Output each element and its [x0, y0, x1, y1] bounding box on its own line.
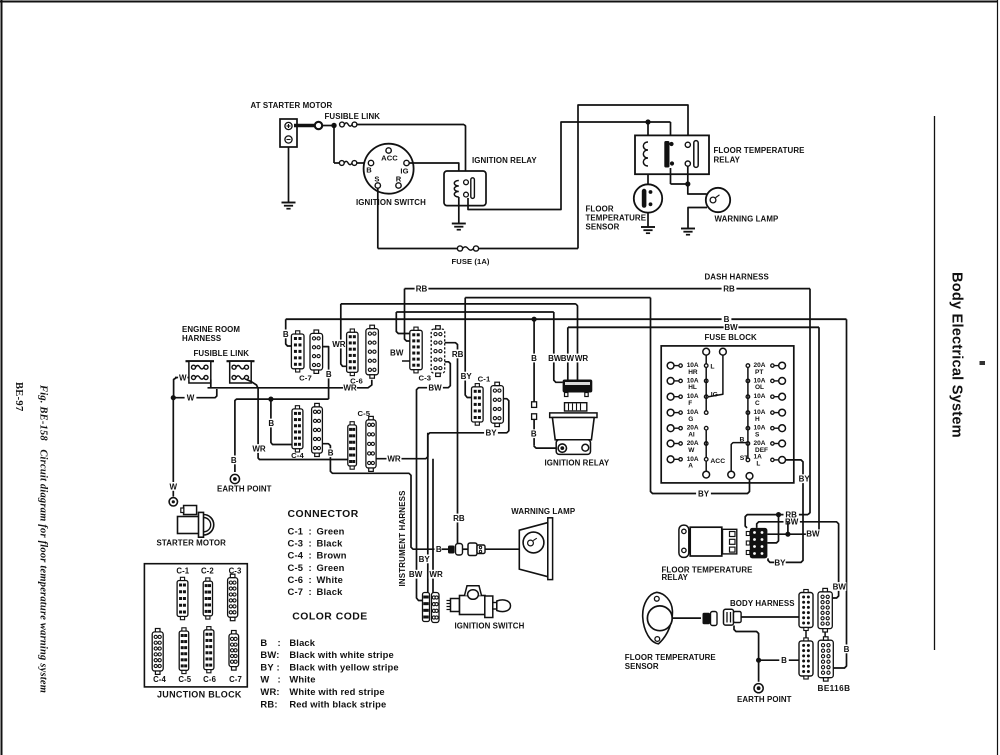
svg-text::: :: [309, 525, 312, 536]
svg-text:CONNECTOR: CONNECTOR: [288, 509, 359, 520]
svg-text:BY: BY: [461, 372, 473, 381]
svg-text:C-1: C-1: [288, 525, 304, 536]
svg-text:W: W: [260, 674, 269, 685]
svg-text:C-5: C-5: [357, 409, 370, 418]
svg-text:FLOOR TEMPERATURE: FLOOR TEMPERATURE: [625, 653, 716, 662]
svg-text:Black: Black: [317, 537, 344, 548]
svg-text:PT: PT: [755, 369, 763, 376]
svg-text:C-7: C-7: [299, 374, 312, 383]
svg-text:SENSOR: SENSOR: [586, 223, 620, 232]
svg-text:BW: BW: [409, 570, 423, 579]
svg-text:C-4: C-4: [288, 550, 304, 561]
svg-text:WR: WR: [332, 340, 346, 349]
svg-text:B: B: [781, 656, 787, 665]
svg-text:Fig. BE-158 Circuit diagram: Fig. BE-158 Circuit diagram for floor te…: [38, 384, 49, 693]
svg-text:HR: HR: [688, 369, 698, 376]
svg-text:C-7: C-7: [229, 675, 242, 684]
svg-text:WR: WR: [252, 444, 266, 453]
svg-text:BW: BW: [833, 582, 847, 591]
svg-text:DASH HARNESS: DASH HARNESS: [705, 273, 769, 282]
svg-text:S: S: [374, 175, 379, 184]
svg-text:Green: Green: [317, 562, 345, 573]
svg-text:RB: RB: [452, 350, 464, 359]
svg-text:White: White: [289, 674, 315, 685]
svg-text:Brown: Brown: [317, 550, 347, 561]
svg-text:BW: BW: [390, 349, 404, 358]
svg-text:Body Electrical System: Body Electrical System: [949, 272, 965, 438]
svg-text:AT STARTER MOTOR: AT STARTER MOTOR: [251, 101, 333, 110]
svg-text:L: L: [756, 461, 760, 468]
svg-text:Black: Black: [289, 637, 315, 648]
svg-text:L: L: [710, 364, 714, 371]
svg-text:Red with black stripe: Red with black stripe: [289, 698, 386, 709]
svg-text:WR: WR: [387, 455, 401, 464]
svg-text:BE-97: BE-97: [13, 382, 24, 412]
svg-text:FLOOR TEMPERATURE: FLOOR TEMPERATURE: [714, 146, 805, 155]
svg-text:IGNITION SWITCH: IGNITION SWITCH: [356, 198, 426, 207]
svg-text:C-6: C-6: [350, 377, 363, 386]
svg-text:A: A: [688, 463, 693, 470]
svg-text:W: W: [179, 373, 187, 382]
svg-text:ACC: ACC: [710, 458, 725, 465]
svg-text:HARNESS: HARNESS: [182, 334, 221, 343]
svg-text:G: G: [688, 416, 693, 423]
svg-text:BY: BY: [774, 558, 786, 567]
svg-text:FUSE BLOCK: FUSE BLOCK: [705, 333, 757, 342]
svg-text:RELAY: RELAY: [662, 573, 689, 582]
svg-text::: :: [278, 674, 281, 685]
svg-text:B: B: [531, 354, 537, 363]
svg-text::: :: [278, 637, 281, 648]
svg-text:EARTH POINT: EARTH POINT: [217, 485, 272, 494]
svg-text:BY: BY: [485, 429, 497, 438]
svg-text:Black: Black: [317, 586, 344, 597]
svg-text:HL: HL: [688, 384, 697, 391]
svg-text:BW: BW: [428, 384, 442, 393]
svg-text:IGNITION SWITCH: IGNITION SWITCH: [455, 622, 525, 631]
svg-text:C-4: C-4: [291, 451, 304, 460]
svg-text:White: White: [317, 574, 344, 585]
svg-text:FUSE (1A): FUSE (1A): [452, 257, 490, 266]
svg-text:RELAY: RELAY: [714, 156, 741, 165]
svg-text:B: B: [740, 437, 745, 444]
svg-text:FUSIBLE LINK: FUSIBLE LINK: [325, 112, 381, 121]
svg-text:B: B: [260, 637, 267, 648]
svg-text:BY: BY: [799, 475, 811, 484]
svg-text:C-7: C-7: [288, 586, 304, 597]
svg-text:BY: BY: [419, 555, 431, 564]
svg-text:IG: IG: [711, 391, 718, 398]
svg-text:R: R: [396, 175, 402, 184]
svg-text:ACC: ACC: [381, 154, 398, 163]
svg-text:WR: WR: [575, 354, 589, 363]
svg-text:RB: RB: [416, 284, 428, 293]
svg-text:WR: WR: [429, 570, 443, 579]
svg-text::: :: [309, 574, 312, 585]
svg-text:JUNCTION BLOCK: JUNCTION BLOCK: [157, 690, 242, 700]
svg-text:SENSOR: SENSOR: [625, 662, 659, 671]
svg-text:B: B: [328, 449, 334, 458]
svg-text:WR:: WR:: [260, 686, 279, 697]
svg-text:B: B: [268, 419, 274, 428]
svg-text:B: B: [436, 545, 442, 554]
svg-text:C-5: C-5: [178, 675, 191, 684]
svg-text:TEMPERATURE: TEMPERATURE: [586, 214, 647, 223]
svg-text:C-5: C-5: [288, 562, 304, 573]
svg-text::: :: [309, 550, 312, 561]
svg-text:C-4: C-4: [153, 675, 166, 684]
svg-text:WARNING LAMP: WARNING LAMP: [511, 507, 575, 516]
svg-text:Black with white stripe: Black with white stripe: [289, 649, 394, 660]
svg-text:1A: 1A: [754, 453, 763, 460]
svg-text:ENGINE ROOM: ENGINE ROOM: [182, 325, 240, 334]
svg-text:AI: AI: [688, 432, 695, 439]
svg-text:B: B: [366, 166, 372, 175]
svg-text:W: W: [688, 447, 695, 454]
svg-text:COLOR CODE: COLOR CODE: [292, 612, 367, 623]
svg-text:FUSIBLE LINK: FUSIBLE LINK: [194, 349, 250, 358]
svg-text:C-2: C-2: [201, 567, 214, 576]
svg-text:H: H: [755, 416, 760, 423]
svg-text:BODY HARNESS: BODY HARNESS: [730, 599, 795, 608]
svg-text:STARTER MOTOR: STARTER MOTOR: [157, 539, 227, 548]
svg-text:FLOOR: FLOOR: [586, 205, 614, 214]
svg-text:BW: BW: [561, 354, 575, 363]
svg-text:BW:: BW:: [260, 649, 279, 660]
svg-text:BW: BW: [724, 323, 738, 332]
svg-text:Black with yellow stripe: Black with yellow stripe: [289, 661, 398, 672]
svg-text:W: W: [187, 394, 195, 403]
svg-text:B: B: [326, 370, 332, 379]
svg-text:B: B: [283, 330, 289, 339]
svg-text:C: C: [755, 400, 760, 407]
svg-text:BY :: BY :: [260, 661, 279, 672]
svg-text:F: F: [688, 400, 692, 407]
svg-text:IGNITION RELAY: IGNITION RELAY: [545, 459, 610, 468]
svg-text:B: B: [231, 456, 237, 465]
svg-text:BY: BY: [698, 489, 710, 498]
svg-text:RB:: RB:: [260, 698, 277, 709]
svg-text:RB: RB: [723, 284, 735, 293]
svg-text:BW: BW: [806, 530, 820, 539]
svg-text:EARTH POINT: EARTH POINT: [737, 695, 792, 704]
svg-text:W: W: [170, 482, 178, 491]
svg-text:IGNITION RELAY: IGNITION RELAY: [472, 156, 537, 165]
svg-text:Green: Green: [317, 525, 345, 536]
svg-text:BE116B: BE116B: [818, 684, 851, 693]
svg-text:OL: OL: [755, 384, 764, 391]
svg-text:B: B: [531, 430, 537, 439]
svg-text::: :: [309, 537, 312, 548]
svg-text:S: S: [755, 432, 760, 439]
svg-text:RB: RB: [453, 514, 465, 523]
svg-text:WARNING LAMP: WARNING LAMP: [715, 215, 779, 224]
svg-text:IG: IG: [400, 167, 408, 176]
svg-text:INSTRUMENT HARNESS: INSTRUMENT HARNESS: [398, 490, 407, 586]
svg-text:C-3: C-3: [288, 537, 304, 548]
svg-text:C-6: C-6: [203, 675, 216, 684]
svg-text::: :: [309, 562, 312, 573]
svg-text:C-1: C-1: [176, 567, 189, 576]
svg-text::: :: [309, 586, 312, 597]
svg-text:White with red stripe: White with red stripe: [289, 686, 384, 697]
svg-text:C-1: C-1: [478, 375, 491, 384]
svg-text:C-6: C-6: [288, 574, 304, 585]
svg-text:C-3: C-3: [418, 374, 431, 383]
svg-text:B: B: [844, 645, 850, 654]
